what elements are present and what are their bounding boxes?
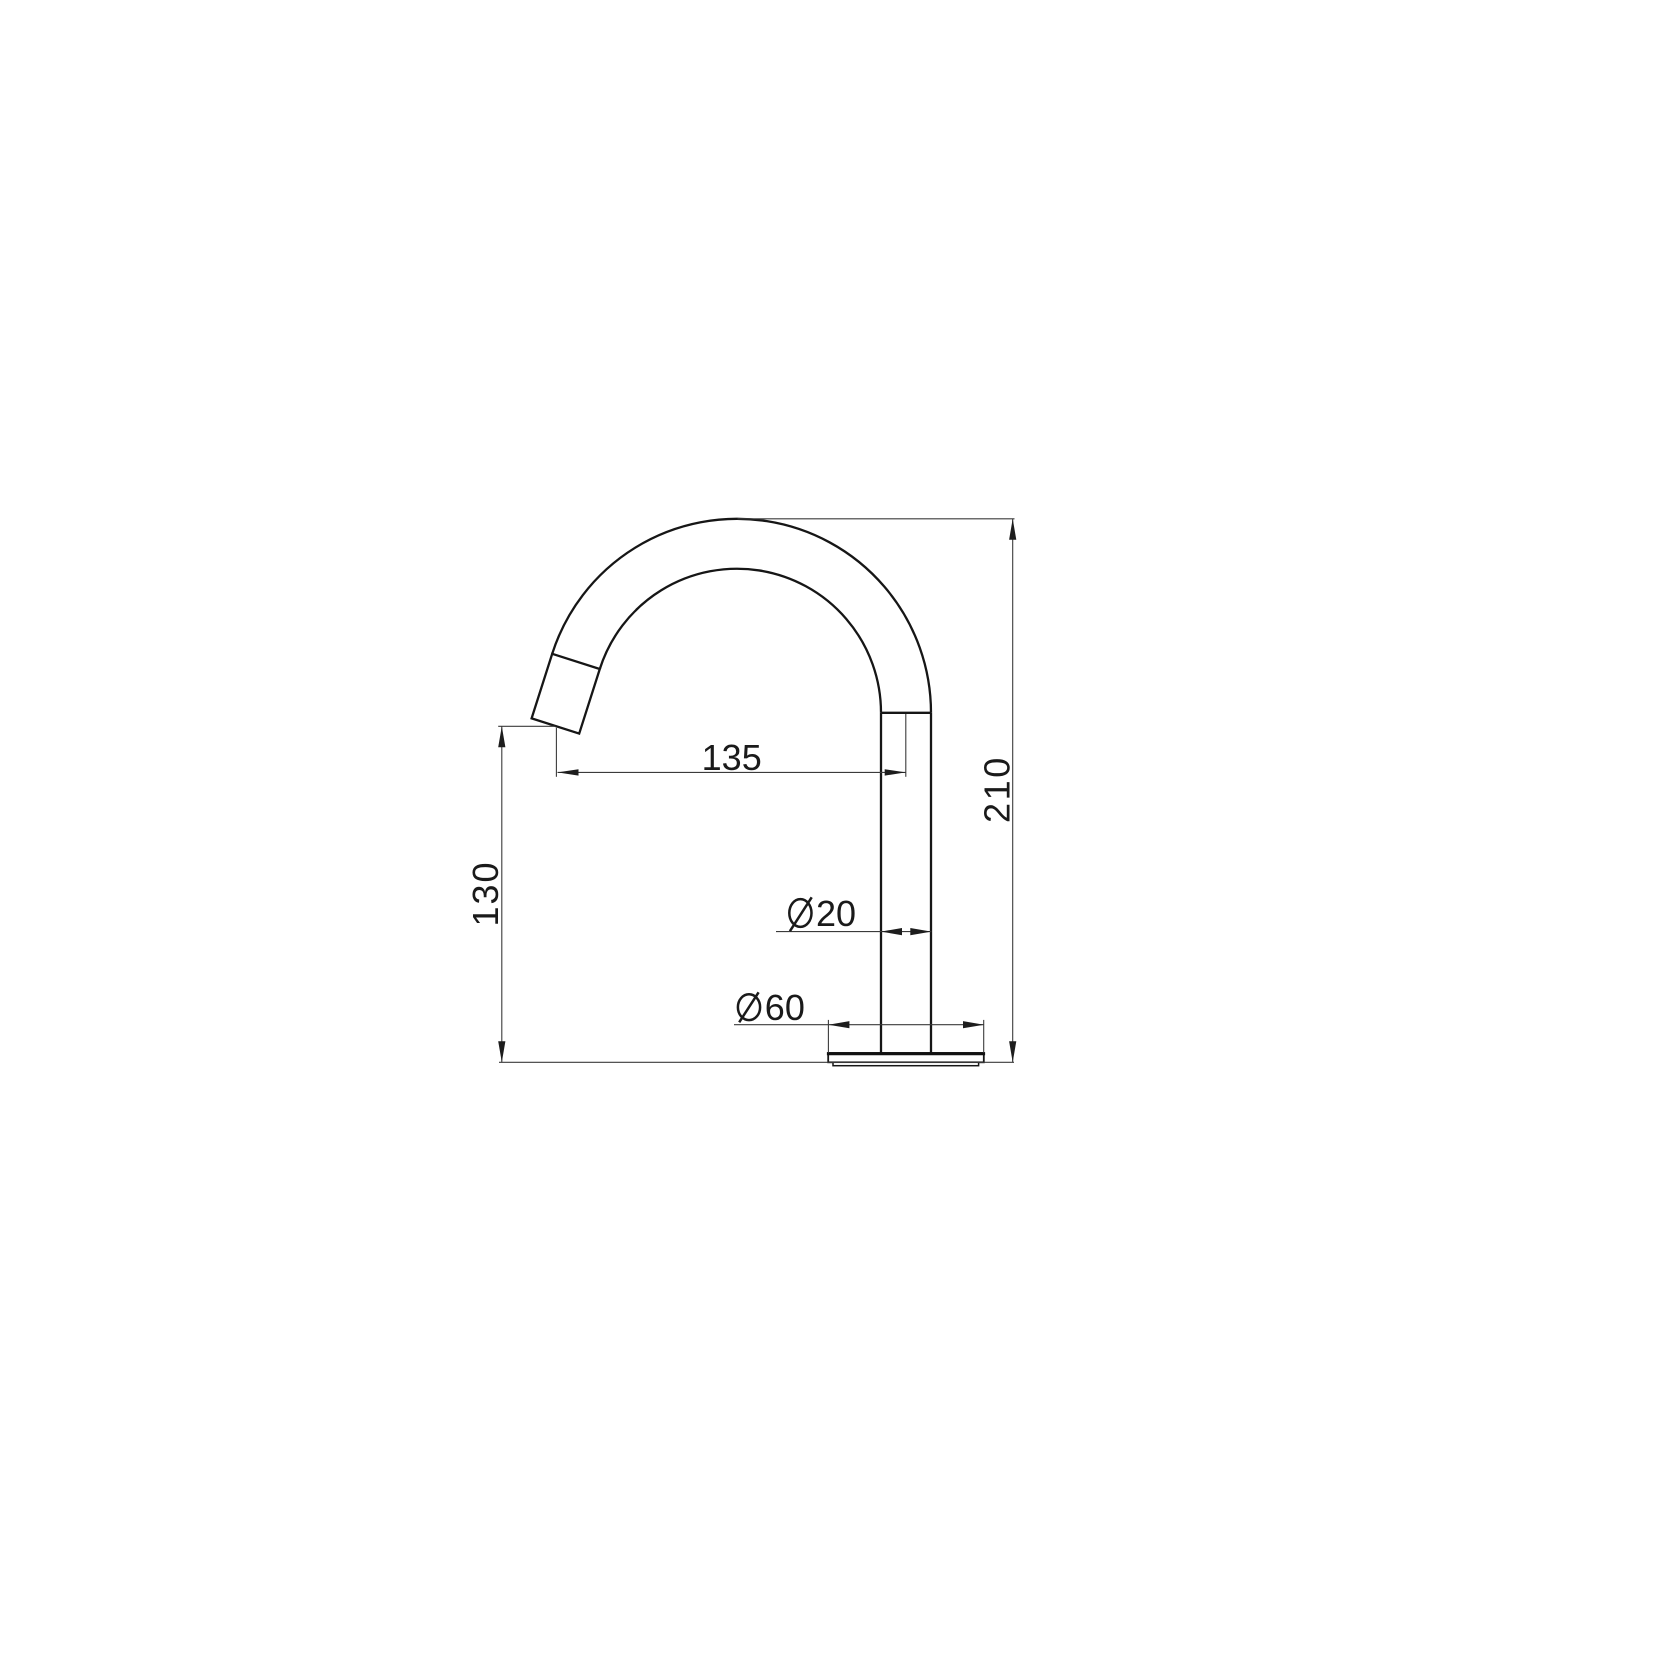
- svg-text:135: 135: [702, 737, 762, 778]
- svg-text:210: 210: [976, 755, 1017, 823]
- svg-text:20: 20: [816, 893, 856, 934]
- svg-text:130: 130: [465, 860, 506, 926]
- svg-text:60: 60: [765, 987, 805, 1028]
